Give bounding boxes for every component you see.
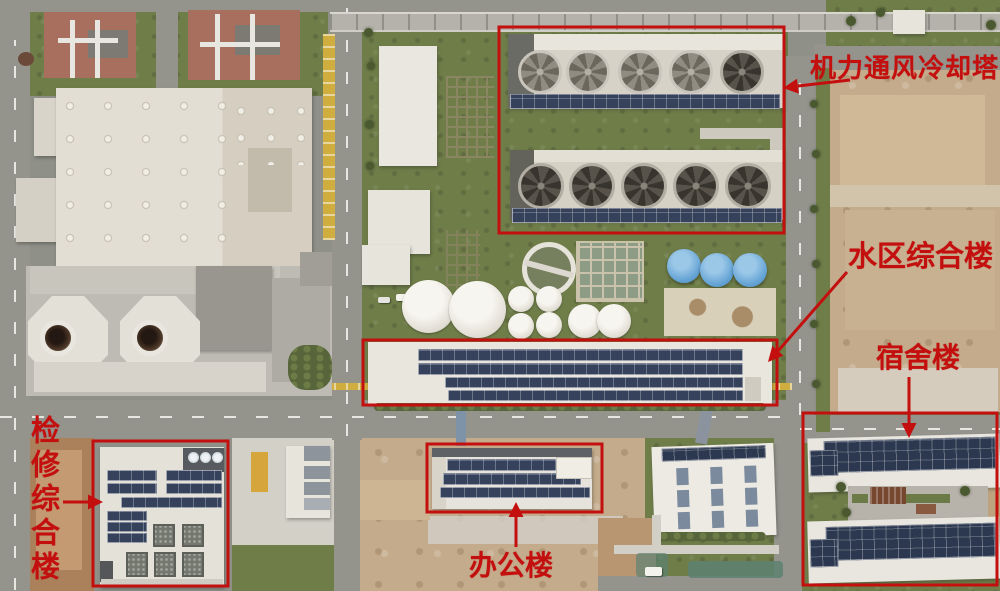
equipment-pad [251, 452, 268, 492]
cooling-towers-label: 机力通风冷却塔 [810, 56, 999, 83]
auxiliary-building [362, 245, 410, 285]
deck [34, 362, 266, 392]
rooftop-chiller [182, 552, 204, 577]
roof-section [304, 466, 330, 479]
planter [852, 494, 868, 503]
cooling-fan [566, 50, 610, 94]
cooling-fan [720, 50, 764, 94]
hedge [658, 532, 766, 541]
solar-roof [810, 450, 839, 477]
dormitory-building [807, 516, 1000, 583]
annotated-aerial-photo: 机力通风冷却塔 水区综合楼 宿舍楼 检修综合楼 办公楼 [0, 0, 1000, 591]
equipment-block [300, 252, 332, 286]
rooftop-chiller [153, 524, 175, 547]
rooftop-chiller [154, 552, 176, 577]
pipe [70, 20, 75, 78]
skylight [677, 490, 690, 507]
tree [364, 28, 373, 37]
skylight [746, 509, 759, 526]
tree [812, 380, 820, 388]
cooling-fan [725, 163, 771, 209]
water-tank-blue [667, 249, 701, 283]
solar-roof [825, 523, 996, 561]
pipe [58, 38, 118, 43]
tree [367, 62, 375, 70]
tree [846, 16, 856, 26]
concrete-pad [428, 516, 623, 544]
storage-tank [536, 312, 562, 338]
exhaust-stack [132, 320, 168, 356]
roof-section [304, 498, 330, 510]
storage-tank [508, 313, 534, 339]
exhaust-stack [40, 320, 76, 356]
road [598, 576, 778, 591]
transformer-equipment [235, 25, 280, 55]
solar-array [166, 483, 222, 494]
road-marking [346, 0, 348, 436]
grass-area [232, 545, 336, 591]
road [334, 436, 360, 591]
road-marking [800, 428, 1000, 430]
solar-array [107, 470, 157, 481]
solar-array [448, 390, 743, 401]
vehicle [378, 297, 390, 303]
small-structure [893, 10, 925, 34]
cooling-fan [618, 50, 662, 94]
rooftop-chiller [126, 552, 148, 577]
skylight [745, 488, 758, 505]
skylight [711, 489, 724, 506]
walkway [101, 579, 223, 587]
solar-array [107, 511, 147, 521]
solar-array [418, 363, 743, 375]
pipe-frame [446, 76, 494, 158]
construction-dirt [840, 95, 985, 190]
skylight [744, 466, 757, 483]
cooling-fan [518, 50, 562, 94]
tree [365, 120, 374, 129]
vehicle [645, 567, 662, 576]
water-tank-blue [700, 253, 734, 287]
hedge [374, 403, 766, 411]
tree [810, 320, 818, 328]
office-label: 办公楼 [469, 551, 553, 580]
solar-array [661, 445, 765, 462]
concrete-pad [838, 368, 998, 418]
road [156, 8, 178, 96]
roof-tank [200, 452, 211, 463]
solar-roof [823, 437, 996, 473]
roof-structure [745, 377, 761, 401]
skylight [676, 468, 689, 485]
garden-bush [18, 52, 34, 66]
solar-array [121, 497, 222, 508]
grass-verge [816, 68, 830, 432]
transformer-equipment [88, 30, 128, 58]
pipe [215, 14, 220, 80]
roof-section [304, 446, 330, 461]
rooftop-chiller [182, 524, 204, 547]
roof-edge [432, 448, 592, 457]
solar-array [512, 208, 782, 223]
pipe [95, 20, 100, 78]
road-marking [0, 416, 788, 418]
solar-array [107, 522, 147, 532]
roof-structure [556, 457, 592, 479]
tree [876, 8, 885, 17]
tree [366, 162, 374, 170]
pipe-rack [323, 34, 335, 240]
storage-tank [536, 286, 562, 312]
maintenance-label: 检修综合楼 [28, 415, 58, 585]
skylight-building [651, 443, 776, 539]
storage-tank [449, 281, 506, 338]
water-tank-blue [733, 253, 767, 287]
solar-array [440, 487, 590, 498]
road-marking [14, 40, 16, 590]
storage-tank [597, 304, 631, 338]
pipe [250, 14, 255, 80]
tank-pad [664, 288, 776, 336]
roof-tank [188, 452, 199, 463]
solar-array [447, 459, 557, 471]
tree [836, 482, 846, 492]
boiler-building [196, 266, 272, 350]
planter [906, 494, 950, 503]
ground-netting [688, 561, 783, 578]
solar-array [107, 483, 157, 494]
tree [810, 100, 818, 108]
tree [960, 486, 970, 496]
construction-dirt [360, 480, 430, 520]
auxiliary-building [379, 46, 437, 166]
storage-tank [402, 280, 455, 333]
tree [812, 150, 820, 158]
solar-array [510, 94, 780, 109]
cooling-fan [669, 50, 713, 94]
planter [916, 504, 936, 514]
roof-tank [212, 452, 223, 463]
solar-roof [810, 539, 839, 568]
solar-array [445, 377, 743, 388]
filter-basins [576, 241, 644, 302]
cooling-fan [621, 163, 667, 209]
solar-array [107, 533, 147, 543]
pipe [200, 42, 280, 47]
solar-array [418, 349, 743, 361]
roof-vents [64, 100, 229, 262]
cooling-fan [673, 163, 719, 209]
roof-vents [235, 105, 305, 165]
concrete-pad [828, 185, 1000, 207]
skylight [712, 511, 725, 528]
cooling-fan [518, 163, 564, 209]
solar-array [166, 470, 222, 481]
dormitory-label: 宿舍楼 [876, 343, 960, 372]
skylight [678, 512, 691, 529]
roof-section [304, 482, 330, 495]
water-complex-label: 水区综合楼 [848, 241, 993, 271]
tree [810, 205, 818, 213]
skylight [710, 467, 723, 484]
garden-bed [288, 345, 332, 390]
road-marking [799, 70, 801, 415]
tree [986, 20, 996, 30]
storage-tank [508, 286, 534, 312]
tree [842, 508, 851, 517]
tree [812, 260, 820, 268]
cooling-fan [569, 163, 615, 209]
pergola [870, 487, 906, 504]
walkway [652, 515, 661, 550]
